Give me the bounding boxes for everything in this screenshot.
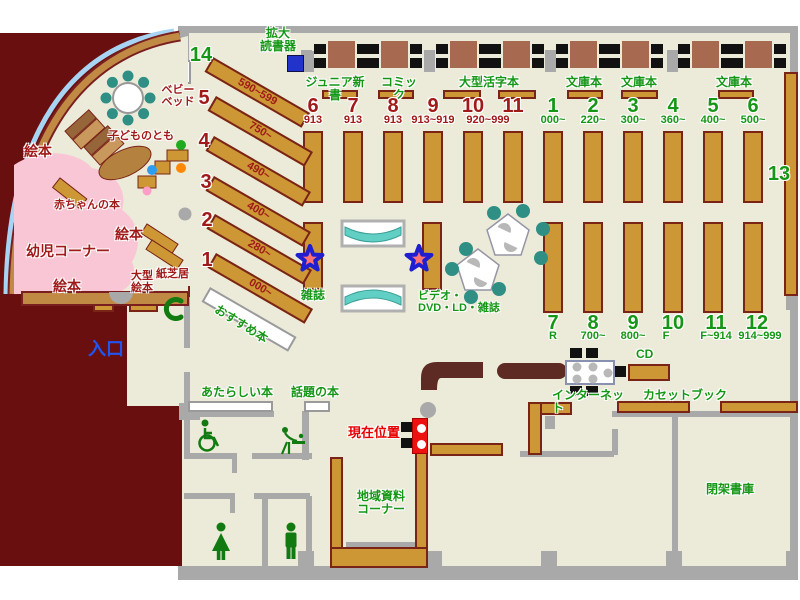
story-table xyxy=(101,71,156,126)
toilet-woman-icon xyxy=(212,523,230,561)
diagonal-num-2: 2 xyxy=(195,209,219,231)
shelf-13-label: 13 xyxy=(762,163,796,185)
seat-dot xyxy=(147,165,157,175)
curved-benches xyxy=(342,221,404,311)
section-bunko-1: 文庫本 xyxy=(563,76,605,89)
topic-books-label: 話題の本 xyxy=(291,386,351,399)
marker-seat xyxy=(417,424,426,433)
door-knob xyxy=(420,402,436,418)
reading-tables xyxy=(314,41,786,68)
local-corner-label: 地域資料 コーナー xyxy=(341,490,421,517)
star-marker xyxy=(298,246,323,270)
seat-dot xyxy=(143,187,152,196)
baby-change-icon xyxy=(282,427,305,454)
ehon-label-3: 絵本 xyxy=(53,279,93,295)
service-counter xyxy=(421,362,567,390)
cassette-label: カセットブック xyxy=(643,389,733,402)
kodomo-label: 子どものとも xyxy=(108,130,184,142)
cd-label: CD xyxy=(636,348,666,361)
shelf-range: 920~999 xyxy=(458,114,518,126)
new-books-label: あたらしい本 xyxy=(201,386,279,399)
magnifier-label: 拡大 読書器 xyxy=(252,27,304,54)
pentagon-tables xyxy=(445,204,550,304)
library-floor-map: 590~599 750~ 490~ 400~ 280~ 000~ xyxy=(0,0,800,600)
baby-bed-label: ベビー ベッド xyxy=(158,84,198,109)
section-large-print: 大型活字本 xyxy=(455,76,523,89)
shelf-range: 500~ xyxy=(723,114,783,126)
seat-dot xyxy=(176,163,186,173)
kamishibai-label: 紙芝居 xyxy=(156,268,196,280)
diagonal-num-3: 3 xyxy=(194,171,218,193)
ehon-label-2: 絵本 xyxy=(115,227,155,243)
entrance-label: 入口 xyxy=(88,339,148,359)
diagonal-num-1: 1 xyxy=(195,249,219,271)
shelf-range: 914~999 xyxy=(724,330,796,342)
wheelchair-icon xyxy=(200,420,219,451)
section-bunko-2: 文庫本 xyxy=(618,76,660,89)
current-location-label: 現在位置 xyxy=(348,426,412,441)
marker-seat xyxy=(417,440,426,449)
door-knob xyxy=(179,208,192,221)
diagonal-num-4: 4 xyxy=(192,130,216,152)
video-label: ビデオ・ DVD・LD・雑誌 xyxy=(418,290,518,315)
large-ehon-label: 大型 絵本 xyxy=(128,270,156,295)
internet-table xyxy=(566,361,614,384)
toilet-man-icon xyxy=(286,523,297,560)
diagonal-num-14: 14 xyxy=(186,44,216,66)
baby-books-label: 赤ちゃんの本 xyxy=(54,199,144,211)
section-bunko-3: 文庫本 xyxy=(712,76,756,89)
closed-stacks-label: 閉架書庫 xyxy=(706,483,766,496)
internet-label: インターネット xyxy=(552,389,634,416)
toddler-corner-label: 幼児コーナー xyxy=(26,244,116,260)
ehon-label-1: 絵本 xyxy=(24,144,64,160)
magazine-label: 雑誌 xyxy=(296,289,330,302)
star-marker xyxy=(407,246,432,270)
shelf-range: 913~919 xyxy=(401,114,465,126)
